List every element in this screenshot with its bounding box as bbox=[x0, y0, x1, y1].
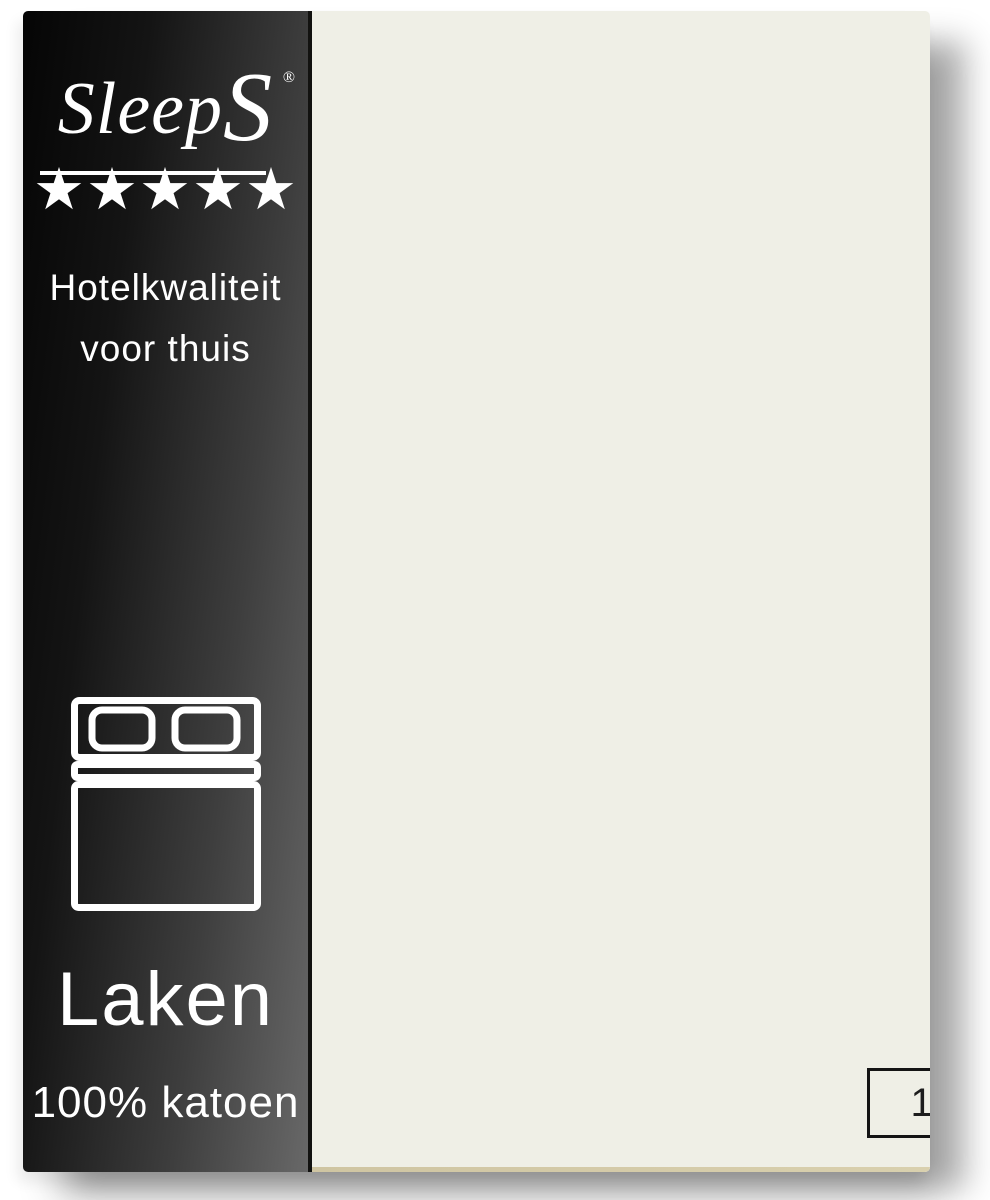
five-star-rating-icon: ★★★★★ bbox=[23, 157, 308, 223]
sheet-package: 150x260 cm SleepS ® ★★★★★ Hotelkwaliteit… bbox=[23, 11, 930, 1172]
package-spine-line bbox=[308, 11, 312, 1172]
product-image-stage: 150x260 cm SleepS ® ★★★★★ Hotelkwaliteit… bbox=[0, 0, 990, 1200]
tagline-line2: voor thuis bbox=[23, 318, 308, 379]
brand-logo-main: Sleep bbox=[58, 68, 223, 150]
bed-icon-container bbox=[23, 697, 308, 916]
brand-logo-text: SleepS bbox=[23, 51, 308, 159]
brand-logo: SleepS ® bbox=[23, 51, 308, 171]
sheet-fold-edge bbox=[312, 1167, 930, 1172]
product-type-label: Laken bbox=[23, 959, 308, 1041]
sleeve-band: SleepS ® ★★★★★ Hotelkwaliteit voor thuis bbox=[23, 11, 308, 1172]
size-badge: 150x260 cm bbox=[867, 1068, 930, 1138]
registered-trademark-icon: ® bbox=[283, 69, 295, 87]
brand-logo-cap-s: S bbox=[223, 53, 273, 162]
folded-sheet: 150x260 cm bbox=[312, 11, 930, 1172]
size-label: 150x260 cm bbox=[911, 1081, 930, 1126]
bed-icon bbox=[71, 697, 261, 911]
material-label: 100% katoen bbox=[23, 1079, 308, 1127]
tagline-line1: Hotelkwaliteit bbox=[23, 257, 308, 318]
tagline: Hotelkwaliteit voor thuis bbox=[23, 257, 308, 379]
